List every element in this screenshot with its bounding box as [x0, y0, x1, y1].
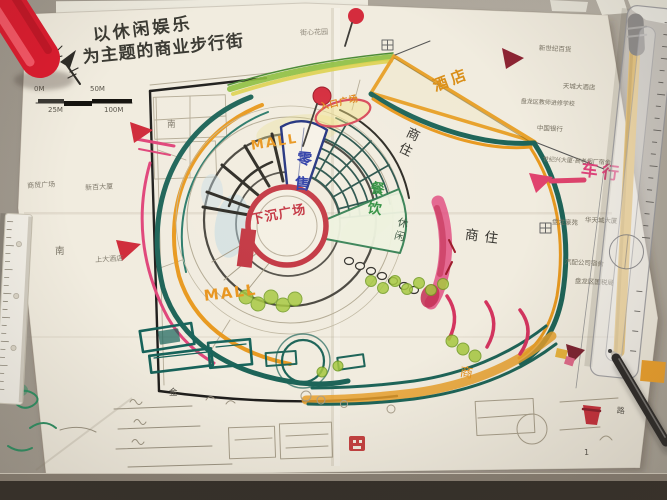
white-ruler: [0, 213, 32, 404]
clear-ruler: [583, 4, 667, 380]
desk-photo: 以休闲娱乐 为主题的商业步行街 0M 50M 25M 100M 街心花园 MAL…: [0, 0, 667, 500]
sticky-note: [640, 360, 666, 383]
desk-objects-layer: [0, 0, 667, 500]
red-marker-pen: [0, 0, 74, 90]
